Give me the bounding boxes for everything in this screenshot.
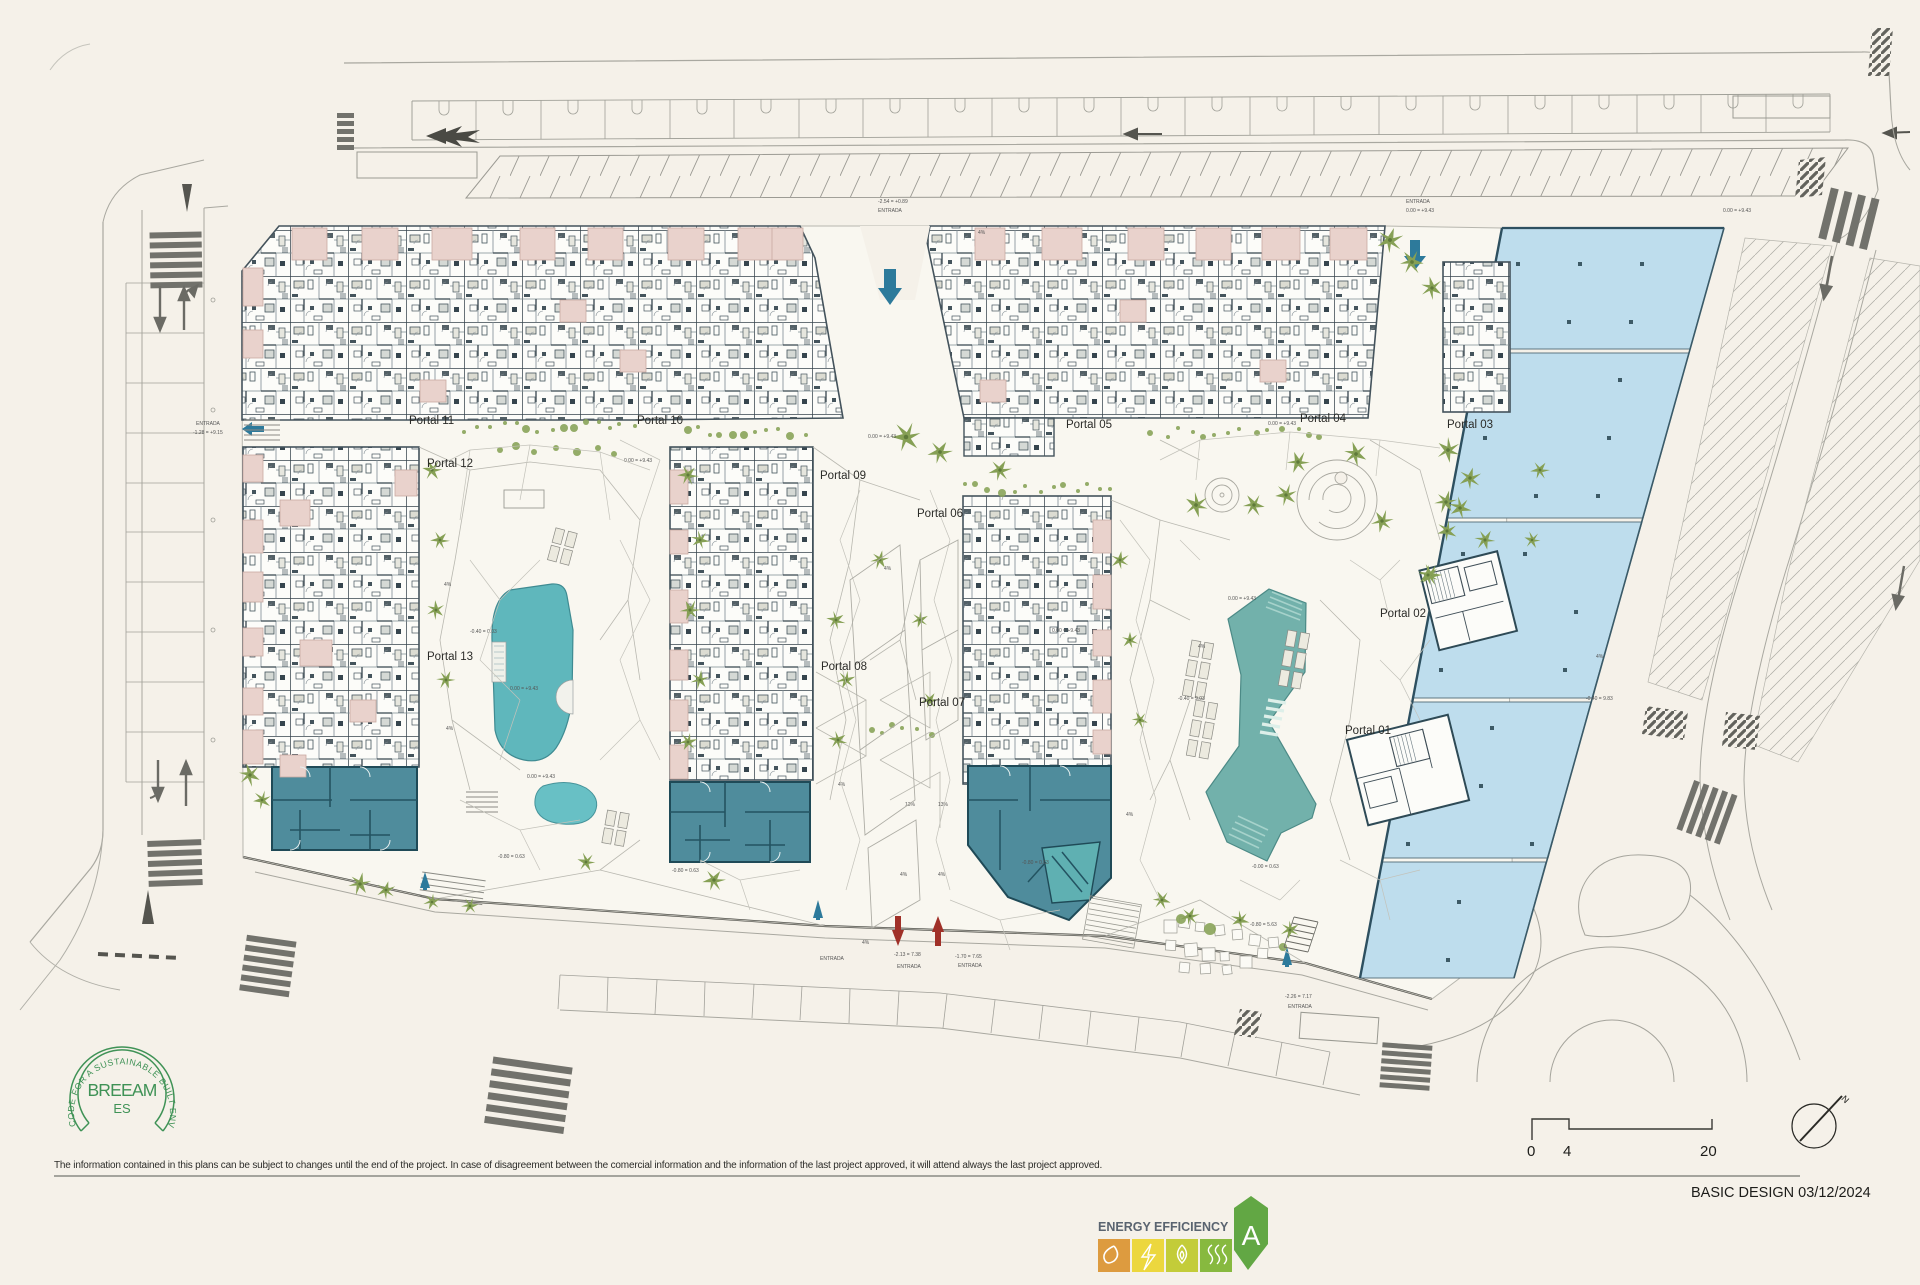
svg-text:-0.80 = 5.63: -0.80 = 5.63 <box>1250 922 1277 928</box>
svg-text:Portal 12: Portal 12 <box>427 458 473 470</box>
svg-text:-0.00 = 0.63: -0.00 = 0.63 <box>1252 864 1279 870</box>
svg-text:-0.40 = 9.83: -0.40 = 9.83 <box>1586 696 1613 702</box>
svg-text:Portal 07: Portal 07 <box>919 697 965 709</box>
svg-text:0: 0 <box>1527 1143 1535 1160</box>
svg-text:ENTRADA: ENTRADA <box>897 964 922 970</box>
svg-text:Portal 06: Portal 06 <box>917 508 963 520</box>
svg-text:The information contained in t: The information contained in this plans … <box>54 1160 1102 1171</box>
svg-text:ENTRADA: ENTRADA <box>878 208 903 214</box>
svg-text:-0.80 = 0.63: -0.80 = 0.63 <box>672 868 699 874</box>
svg-text:4%: 4% <box>978 230 986 236</box>
svg-text:0.00 = +9.43: 0.00 = +9.43 <box>527 774 555 780</box>
svg-text:A: A <box>1242 1220 1261 1251</box>
svg-text:13%: 13% <box>938 802 949 808</box>
svg-text:-2.13 = 7.38: -2.13 = 7.38 <box>894 952 921 958</box>
svg-text:4%: 4% <box>900 872 908 878</box>
svg-text:0.00 = +9.43: 0.00 = +9.43 <box>1228 596 1256 602</box>
svg-text:BREEAM: BREEAM <box>87 1080 156 1100</box>
svg-text:0.00 = +9.43: 0.00 = +9.43 <box>510 686 538 692</box>
svg-text:0.00 = +9.43: 0.00 = +9.43 <box>1052 628 1080 634</box>
svg-text:Portal 09: Portal 09 <box>820 470 866 482</box>
svg-text:Portal 05: Portal 05 <box>1066 419 1112 431</box>
svg-text:-1.28 = +9.15: -1.28 = +9.15 <box>193 430 223 436</box>
svg-text:BASIC DESIGN 03/12/2024: BASIC DESIGN 03/12/2024 <box>1691 1185 1871 1201</box>
svg-text:4%: 4% <box>1198 644 1206 650</box>
svg-text:-0.40 = 9.03: -0.40 = 9.03 <box>1178 696 1205 702</box>
svg-text:-2.54 = +0.89: -2.54 = +0.89 <box>878 199 908 205</box>
svg-text:Portal 02: Portal 02 <box>1380 608 1426 620</box>
svg-text:Portal 08: Portal 08 <box>821 661 867 673</box>
svg-text:0.00 = +9.43: 0.00 = +9.43 <box>868 434 896 440</box>
svg-text:Portal 11: Portal 11 <box>409 415 454 427</box>
svg-text:ENTRADA: ENTRADA <box>958 963 983 969</box>
svg-text:4%: 4% <box>444 582 452 588</box>
svg-text:ES: ES <box>113 1101 131 1116</box>
svg-text:4%: 4% <box>862 940 870 946</box>
svg-text:-0.80 = 0.63: -0.80 = 0.63 <box>498 854 525 860</box>
svg-text:4%: 4% <box>938 872 946 878</box>
svg-text:4%: 4% <box>884 566 892 572</box>
svg-text:-0.80 = 0.63: -0.80 = 0.63 <box>1022 860 1049 866</box>
svg-text:0.00 = +9.43: 0.00 = +9.43 <box>624 458 652 464</box>
svg-text:ENTRADA: ENTRADA <box>1406 199 1431 205</box>
svg-text:ENTRADA: ENTRADA <box>820 956 845 962</box>
svg-text:Portal 04: Portal 04 <box>1300 413 1347 425</box>
svg-text:Portal 01: Portal 01 <box>1345 725 1391 737</box>
svg-text:0.00 = +9.43: 0.00 = +9.43 <box>1268 421 1296 427</box>
svg-text:4%: 4% <box>446 726 454 732</box>
svg-text:-1.70 = 7.65: -1.70 = 7.65 <box>955 954 982 960</box>
svg-text:-2.26 = 7.17: -2.26 = 7.17 <box>1285 994 1312 1000</box>
svg-text:0.00 = +9.43: 0.00 = +9.43 <box>1406 208 1434 214</box>
svg-text:4%: 4% <box>1596 654 1604 660</box>
svg-text:20: 20 <box>1700 1143 1717 1160</box>
svg-text:4: 4 <box>1563 1143 1571 1160</box>
svg-text:-0.40 = 0.03: -0.40 = 0.03 <box>470 629 497 635</box>
svg-text:ENTRADA: ENTRADA <box>196 421 221 427</box>
svg-text:Portal 10: Portal 10 <box>637 415 683 427</box>
svg-text:ENERGY EFFICIENCY: ENERGY EFFICIENCY <box>1098 1220 1229 1234</box>
svg-text:0.00 = +9.43: 0.00 = +9.43 <box>1723 208 1751 214</box>
svg-text:4%: 4% <box>1126 812 1134 818</box>
svg-text:Portal 13: Portal 13 <box>427 651 473 663</box>
svg-text:ENTRADA: ENTRADA <box>1288 1004 1313 1010</box>
svg-text:Portal 03: Portal 03 <box>1447 419 1493 431</box>
